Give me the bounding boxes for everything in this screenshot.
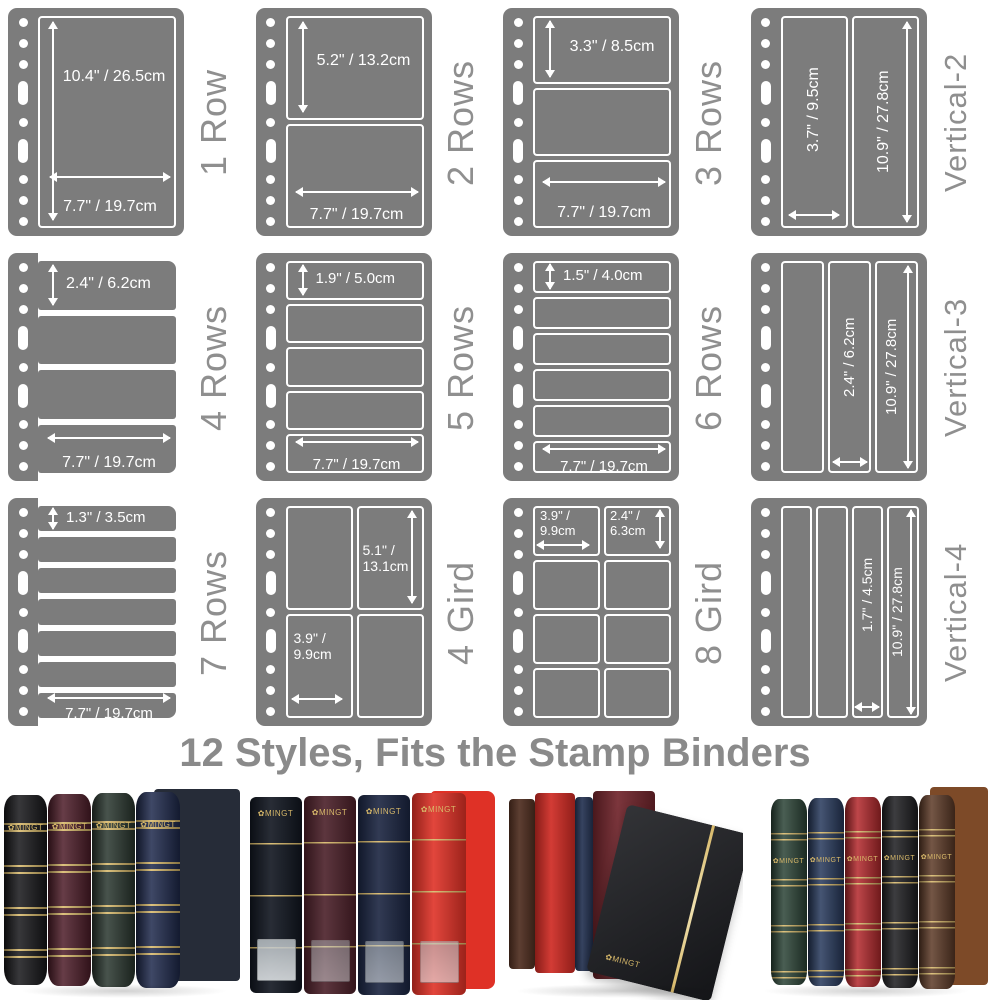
punch-hole bbox=[514, 707, 523, 716]
punch-hole bbox=[266, 18, 275, 27]
punch-hole bbox=[266, 571, 276, 595]
binder-spine: ✿MINGT bbox=[845, 797, 881, 987]
style-label: 7 Rows bbox=[186, 490, 242, 735]
album-page: 2.4" / 6.2cm 10.9" / 27.8cm bbox=[751, 253, 927, 481]
punch-hole bbox=[514, 39, 523, 48]
album-page: 10.4" / 26.5cm 7.7" / 19.7cm bbox=[8, 8, 184, 236]
binder-holes bbox=[503, 8, 533, 236]
pocket bbox=[357, 614, 424, 718]
cell-width-dim-label: 3.9" / 9.9cm bbox=[540, 509, 592, 539]
pocket bbox=[286, 391, 424, 430]
punch-hole bbox=[19, 196, 28, 205]
pocket bbox=[38, 599, 176, 624]
binder-spine: ✿MINGT bbox=[919, 795, 955, 989]
punch-hole bbox=[514, 196, 523, 205]
pocket-area bbox=[38, 506, 176, 718]
punch-hole bbox=[514, 550, 523, 559]
col-width-arrow bbox=[789, 214, 839, 216]
style-label: 4 Rows bbox=[186, 245, 242, 490]
binder-holes bbox=[256, 498, 286, 726]
binder-spine: ✿MINGT bbox=[4, 795, 47, 985]
pocket bbox=[533, 405, 671, 437]
col-width-arrow bbox=[833, 461, 867, 463]
style-cell-vertical-3: 2.4" / 6.2cm 10.9" / 27.8cm Vertical-3 bbox=[743, 245, 990, 490]
binder-spine: ✿MINGT bbox=[136, 792, 180, 988]
punch-hole bbox=[266, 363, 275, 372]
cell-width-arrow bbox=[537, 544, 589, 546]
punch-hole bbox=[761, 326, 771, 350]
height-dim-label: 1.5" / 4.0cm bbox=[563, 267, 643, 284]
binder-holes bbox=[751, 498, 781, 726]
punch-hole bbox=[266, 707, 275, 716]
height-dim-label: 10.4" / 26.5cm bbox=[58, 68, 170, 86]
punch-hole bbox=[761, 462, 770, 471]
brand-text: ✿MINGT bbox=[250, 809, 302, 818]
pocket-area bbox=[533, 261, 671, 473]
punch-hole bbox=[761, 384, 771, 408]
height-dim-label: 1.3" / 3.5cm bbox=[66, 509, 146, 526]
binder-holes bbox=[8, 498, 38, 726]
width-arrow bbox=[50, 176, 170, 178]
punch-hole bbox=[19, 508, 28, 517]
punch-hole bbox=[18, 629, 28, 653]
punch-hole bbox=[19, 608, 28, 617]
caption-text: 12 Styles, Fits the Stamp Binders bbox=[0, 731, 990, 776]
col-width-dim-label: 1.7" / 4.5cm bbox=[859, 518, 875, 671]
width-arrow bbox=[543, 448, 665, 450]
punch-hole bbox=[761, 18, 770, 27]
punch-hole bbox=[266, 629, 276, 653]
punch-hole bbox=[761, 263, 770, 272]
binder-holes bbox=[8, 8, 38, 236]
brand-text: ✿MINGT bbox=[604, 952, 641, 969]
style-label: 1 Row bbox=[186, 0, 242, 245]
binder-holes bbox=[8, 253, 38, 481]
binder-spine: ✿MINGT bbox=[412, 793, 466, 995]
col-height-arrow bbox=[907, 266, 909, 468]
album-page: 3.7" / 9.5cm 10.9" / 27.8cm bbox=[751, 8, 927, 236]
pocket bbox=[604, 614, 671, 664]
binder-holes bbox=[256, 8, 286, 236]
floor-shadow bbox=[762, 984, 970, 998]
punch-hole bbox=[266, 175, 275, 184]
cell-height-arrow bbox=[411, 511, 413, 603]
style-label: 2 Rows bbox=[433, 0, 489, 245]
height-arrow bbox=[549, 21, 551, 77]
book-spine bbox=[509, 799, 535, 969]
binder-spine: ✿MINGT bbox=[304, 796, 356, 994]
style-label: Vertical-4 bbox=[928, 490, 984, 735]
brand-text: ✿MINGT bbox=[4, 823, 47, 832]
punch-hole bbox=[761, 60, 770, 69]
pocket bbox=[38, 16, 176, 228]
punch-hole bbox=[761, 118, 770, 127]
height-arrow bbox=[52, 265, 54, 305]
binder-holes bbox=[751, 8, 781, 236]
punch-hole bbox=[266, 608, 275, 617]
style-label: 4 Gird bbox=[433, 490, 489, 735]
punch-hole bbox=[18, 81, 28, 105]
pocket bbox=[533, 333, 671, 365]
cell-height-dim-label: 2.4" / 6.3cm bbox=[610, 509, 652, 539]
brand-text: ✿MINGT bbox=[771, 857, 807, 865]
brand-text: ✿MINGT bbox=[136, 820, 180, 829]
width-dim-label: 7.7" / 19.7cm bbox=[296, 456, 418, 473]
brand-text: ✿MINGT bbox=[304, 808, 356, 817]
punch-hole bbox=[514, 529, 523, 538]
punch-hole bbox=[513, 326, 523, 350]
punch-hole bbox=[19, 529, 28, 538]
pocket bbox=[38, 370, 176, 419]
style-cell-vertical-2: 3.7" / 9.5cm 10.9" / 27.8cm Vertical-2 bbox=[743, 0, 990, 245]
height-arrow bbox=[52, 508, 54, 529]
style-cell-2-rows: 5.2" / 13.2cm 7.7" / 19.7cm 2 Rows bbox=[248, 0, 496, 245]
punch-hole bbox=[761, 217, 770, 226]
punch-hole bbox=[266, 420, 275, 429]
punch-hole bbox=[761, 508, 770, 517]
pocket bbox=[38, 537, 176, 562]
binder-holes bbox=[256, 253, 286, 481]
punch-hole bbox=[514, 462, 523, 471]
book-spine bbox=[575, 797, 593, 971]
col-width-arrow bbox=[855, 706, 879, 708]
width-dim-label: 7.7" / 19.7cm bbox=[543, 204, 665, 222]
width-arrow bbox=[48, 437, 170, 439]
style-cell-3-rows: 3.3" / 8.5cm 7.7" / 19.7cm 3 Rows bbox=[495, 0, 743, 245]
pocket bbox=[604, 668, 671, 718]
punch-hole bbox=[266, 550, 275, 559]
brand-text: ✿MINGT bbox=[919, 853, 955, 861]
pocket bbox=[533, 297, 671, 329]
pocket bbox=[533, 369, 671, 401]
height-dim-label: 5.2" / 13.2cm bbox=[310, 52, 418, 70]
width-dim-label: 7.7" / 19.7cm bbox=[48, 454, 170, 472]
label-window bbox=[257, 939, 295, 981]
style-cell-7-rows: 1.3" / 3.5cm 7.7" / 19.7cm 7 Rows bbox=[0, 490, 248, 735]
punch-hole bbox=[514, 363, 523, 372]
pocket bbox=[286, 304, 424, 343]
pocket bbox=[286, 506, 353, 610]
pocket bbox=[533, 614, 600, 664]
punch-hole bbox=[513, 81, 523, 105]
punch-hole bbox=[19, 550, 28, 559]
punch-hole bbox=[18, 139, 28, 163]
brand-text: ✿MINGT bbox=[48, 822, 91, 831]
label-window bbox=[365, 941, 403, 983]
punch-hole bbox=[514, 420, 523, 429]
punch-hole bbox=[266, 686, 275, 695]
album-page: 5.1" / 13.1cm 3.9" / 9.9cm bbox=[256, 498, 432, 726]
punch-hole bbox=[19, 118, 28, 127]
binder-photos-row: ✿MINGT ✿MINGT ✿MINGT ✿MINGT ✿MINGT ✿MING… bbox=[0, 775, 990, 1000]
punch-hole bbox=[266, 305, 275, 314]
punch-hole bbox=[514, 217, 523, 226]
brand-text: ✿MINGT bbox=[845, 855, 881, 863]
punch-hole bbox=[19, 60, 28, 69]
col-height-dim-label: 10.9" / 27.8cm bbox=[875, 16, 893, 228]
col-height-dim-label: 10.9" / 27.8cm bbox=[883, 261, 900, 473]
punch-hole bbox=[761, 363, 770, 372]
punch-hole bbox=[19, 441, 28, 450]
album-page: 1.9" / 5.0cm 7.7" / 19.7cm bbox=[256, 253, 432, 481]
punch-hole bbox=[514, 508, 523, 517]
pocket bbox=[38, 568, 176, 593]
binder-holes bbox=[751, 253, 781, 481]
punch-hole bbox=[19, 707, 28, 716]
punch-hole bbox=[761, 571, 771, 595]
album-page: 1.5" / 4.0cm 7.7" / 19.7cm bbox=[503, 253, 679, 481]
punch-hole bbox=[514, 263, 523, 272]
punch-hole bbox=[761, 196, 770, 205]
height-arrow bbox=[302, 22, 304, 112]
pocket-area bbox=[286, 506, 424, 718]
pocket-area bbox=[286, 16, 424, 228]
style-cell-6-rows: 1.5" / 4.0cm 7.7" / 19.7cm 6 Rows bbox=[495, 245, 743, 490]
style-label: 6 Rows bbox=[681, 245, 737, 490]
pocket bbox=[286, 347, 424, 386]
binder-photo-leaning-album: ✿MINGT bbox=[495, 775, 743, 1000]
pocket bbox=[533, 88, 671, 156]
binder-spine: ✿MINGT bbox=[250, 797, 302, 993]
punch-hole bbox=[761, 665, 770, 674]
binder-photo-five-colors-set: ✿MINGT ✿MINGT ✿MINGT ✿MINGT ✿MINGT bbox=[743, 775, 990, 1000]
punch-hole bbox=[761, 305, 770, 314]
punch-hole bbox=[761, 39, 770, 48]
punch-hole bbox=[514, 284, 523, 293]
album-page: 3.9" / 9.9cm 2.4" / 6.3cm bbox=[503, 498, 679, 726]
punch-hole bbox=[266, 441, 275, 450]
pocket bbox=[38, 662, 176, 687]
height-dim-label: 3.3" / 8.5cm bbox=[561, 38, 663, 56]
label-window bbox=[420, 941, 460, 983]
punch-hole bbox=[761, 420, 770, 429]
punch-hole bbox=[266, 217, 275, 226]
col-height-arrow bbox=[906, 22, 908, 222]
binder-spine: ✿MINGT bbox=[771, 799, 807, 985]
floor-shadow bbox=[20, 984, 228, 998]
page-styles-grid: 10.4" / 26.5cm 7.7" / 19.7cm 1 Row 5.2" … bbox=[0, 0, 990, 735]
style-label: Vertical-2 bbox=[928, 0, 984, 245]
binder-spine: ✿MINGT bbox=[882, 796, 918, 988]
binder-spine: ✿MINGT bbox=[48, 794, 91, 986]
punch-hole bbox=[761, 441, 770, 450]
binder-spine: ✿MINGT bbox=[808, 798, 844, 986]
punch-hole bbox=[513, 384, 523, 408]
cell-width-arrow bbox=[292, 698, 342, 700]
punch-hole bbox=[761, 707, 770, 716]
height-dim-label: 2.4" / 6.2cm bbox=[66, 275, 151, 293]
style-cell-4-rows: 2.4" / 6.2cm 7.7" / 19.7cm 4 Rows bbox=[0, 245, 248, 490]
punch-hole bbox=[514, 305, 523, 314]
punch-hole bbox=[266, 384, 276, 408]
punch-hole bbox=[513, 629, 523, 653]
pocket bbox=[816, 506, 848, 718]
col-height-dim-label: 10.9" / 27.8cm bbox=[889, 506, 905, 718]
punch-hole bbox=[19, 305, 28, 314]
pocket-area bbox=[38, 16, 176, 228]
pocket bbox=[533, 560, 600, 610]
punch-hole bbox=[761, 529, 770, 538]
punch-hole bbox=[19, 263, 28, 272]
style-cell-vertical-4: 1.7" / 4.5cm 10.9" / 27.8cm Vertical-4 bbox=[743, 490, 990, 735]
punch-hole bbox=[19, 217, 28, 226]
brand-text: ✿MINGT bbox=[808, 856, 844, 864]
punch-hole bbox=[761, 175, 770, 184]
width-dim-label: 7.7" / 19.7cm bbox=[48, 705, 170, 722]
style-cell-5-rows: 1.9" / 5.0cm 7.7" / 19.7cm 5 Rows bbox=[248, 245, 496, 490]
pocket bbox=[781, 506, 813, 718]
width-arrow bbox=[48, 697, 170, 699]
brand-text: ✿MINGT bbox=[882, 854, 918, 862]
binder-photo-red-slipcase-set: ✿MINGT ✿MINGT ✿MINGT ✿MINGT bbox=[248, 775, 496, 1000]
binder-holes bbox=[503, 253, 533, 481]
height-arrow bbox=[302, 265, 304, 295]
punch-hole bbox=[19, 39, 28, 48]
pocket-area bbox=[781, 16, 919, 228]
punch-hole bbox=[19, 686, 28, 695]
punch-hole bbox=[761, 139, 771, 163]
width-dim-label: 7.7" / 19.7cm bbox=[543, 458, 665, 475]
pocket bbox=[533, 668, 600, 718]
punch-hole bbox=[514, 665, 523, 674]
style-cell-8-gird: 3.9" / 9.9cm 2.4" / 6.3cm 8 Gird bbox=[495, 490, 743, 735]
cell-width-dim-label: 3.9" / 9.9cm bbox=[294, 630, 349, 662]
punch-hole bbox=[266, 39, 275, 48]
style-label: Vertical-3 bbox=[928, 245, 984, 490]
punch-hole bbox=[266, 60, 275, 69]
punch-hole bbox=[19, 462, 28, 471]
gold-stripe bbox=[671, 825, 716, 993]
col-height-arrow bbox=[910, 510, 912, 714]
binder-spine: ✿MINGT bbox=[358, 795, 410, 995]
punch-hole bbox=[761, 686, 770, 695]
punch-hole bbox=[514, 175, 523, 184]
brand-text: ✿MINGT bbox=[92, 821, 135, 830]
punch-hole bbox=[266, 118, 275, 127]
height-arrow bbox=[52, 22, 54, 220]
punch-hole bbox=[513, 139, 523, 163]
style-label: 8 Gird bbox=[681, 490, 737, 735]
punch-hole bbox=[19, 420, 28, 429]
punch-hole bbox=[514, 118, 523, 127]
punch-hole bbox=[266, 263, 275, 272]
album-page: 1.3" / 3.5cm 7.7" / 19.7cm bbox=[8, 498, 184, 726]
col-width-dim-label: 3.7" / 9.5cm bbox=[805, 38, 823, 181]
pocket bbox=[38, 316, 176, 365]
width-arrow bbox=[543, 181, 665, 183]
cell-height-arrow bbox=[659, 510, 661, 548]
width-dim-label: 7.7" / 19.7cm bbox=[296, 206, 418, 224]
punch-hole bbox=[266, 326, 276, 350]
punch-hole bbox=[19, 284, 28, 293]
punch-hole bbox=[761, 284, 770, 293]
col-width-dim-label: 2.4" / 6.2cm bbox=[841, 283, 858, 431]
punch-hole bbox=[266, 81, 276, 105]
brand-text: ✿MINGT bbox=[358, 807, 410, 816]
punch-hole bbox=[266, 462, 275, 471]
binder-spine: ✿MINGT bbox=[92, 793, 135, 987]
punch-hole bbox=[19, 665, 28, 674]
punch-hole bbox=[514, 60, 523, 69]
width-arrow bbox=[296, 191, 418, 193]
punch-hole bbox=[266, 529, 275, 538]
punch-hole bbox=[266, 196, 275, 205]
width-arrow bbox=[296, 441, 418, 443]
style-cell-1-row: 10.4" / 26.5cm 7.7" / 19.7cm 1 Row bbox=[0, 0, 248, 245]
brand-text: ✿MINGT bbox=[412, 805, 466, 814]
punch-hole bbox=[18, 571, 28, 595]
pocket bbox=[781, 261, 824, 473]
punch-hole bbox=[514, 608, 523, 617]
punch-hole bbox=[761, 629, 771, 653]
height-dim-label: 1.9" / 5.0cm bbox=[316, 270, 396, 287]
floor-shadow bbox=[515, 984, 723, 998]
product-image: 10.4" / 26.5cm 7.7" / 19.7cm 1 Row 5.2" … bbox=[0, 0, 990, 1000]
punch-hole bbox=[513, 571, 523, 595]
pocket bbox=[604, 560, 671, 610]
binder-holes bbox=[503, 498, 533, 726]
punch-hole bbox=[19, 175, 28, 184]
punch-hole bbox=[761, 550, 770, 559]
cell-height-dim-label: 5.1" / 13.1cm bbox=[363, 542, 415, 574]
punch-hole bbox=[18, 326, 28, 350]
album-page: 1.7" / 4.5cm 10.9" / 27.8cm bbox=[751, 498, 927, 726]
height-arrow bbox=[549, 264, 551, 289]
punch-hole bbox=[266, 665, 275, 674]
punch-hole bbox=[514, 441, 523, 450]
punch-hole bbox=[19, 363, 28, 372]
pocket bbox=[38, 631, 176, 656]
style-label: 3 Rows bbox=[681, 0, 737, 245]
punch-hole bbox=[761, 81, 771, 105]
punch-hole bbox=[266, 284, 275, 293]
punch-hole bbox=[514, 686, 523, 695]
punch-hole bbox=[266, 508, 275, 517]
binder-photo-classic-set: ✿MINGT ✿MINGT ✿MINGT ✿MINGT bbox=[0, 775, 248, 1000]
style-cell-4-gird: 5.1" / 13.1cm 3.9" / 9.9cm 4 Gird bbox=[248, 490, 496, 735]
width-dim-label: 7.7" / 19.7cm bbox=[50, 198, 170, 216]
style-label: 5 Rows bbox=[433, 245, 489, 490]
book-spine bbox=[535, 793, 575, 973]
album-page: 5.2" / 13.2cm 7.7" / 19.7cm bbox=[256, 8, 432, 236]
label-window bbox=[311, 940, 349, 982]
album-page: 3.3" / 8.5cm 7.7" / 19.7cm bbox=[503, 8, 679, 236]
punch-hole bbox=[761, 608, 770, 617]
punch-hole bbox=[18, 384, 28, 408]
punch-hole bbox=[266, 139, 276, 163]
album-page: 2.4" / 6.2cm 7.7" / 19.7cm bbox=[8, 253, 184, 481]
punch-hole bbox=[514, 18, 523, 27]
punch-hole bbox=[19, 18, 28, 27]
